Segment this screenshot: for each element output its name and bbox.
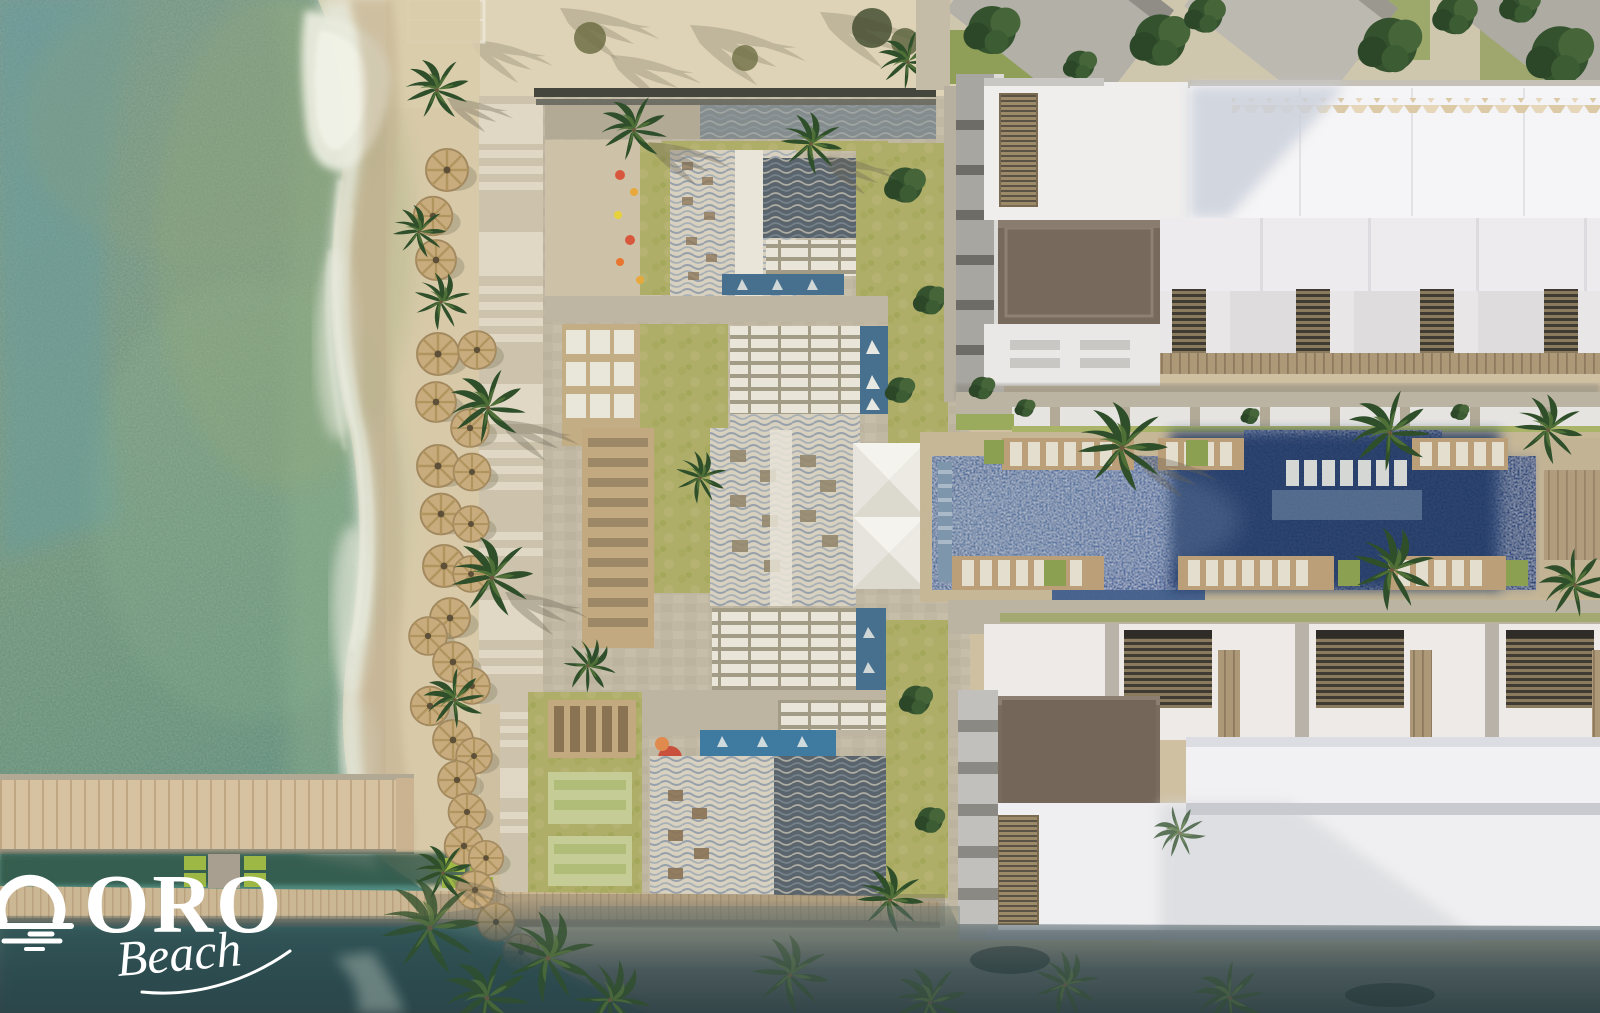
svg-text:Beach: Beach [114,920,243,987]
